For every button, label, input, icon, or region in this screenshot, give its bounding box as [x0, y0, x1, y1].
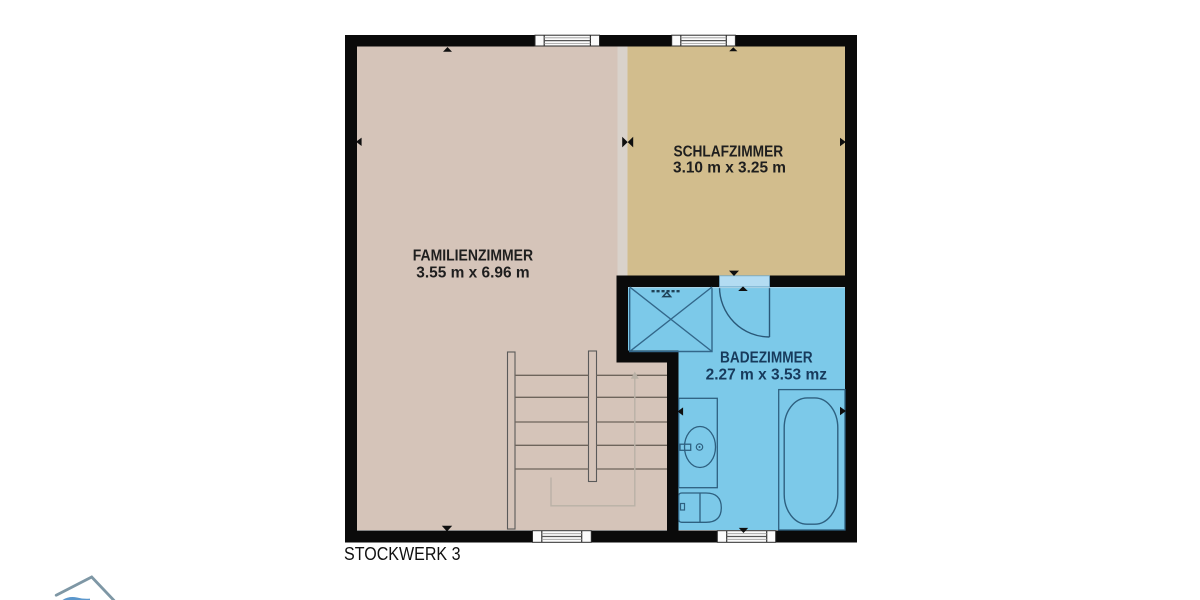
- svg-text:FAMILIENZIMMER: FAMILIENZIMMER: [413, 247, 534, 264]
- svg-text:2.27 m x 3.53 mz: 2.27 m x 3.53 mz: [706, 366, 827, 383]
- svg-text:STOCKWERK 3: STOCKWERK 3: [344, 543, 461, 564]
- svg-text:BADEZIMMER: BADEZIMMER: [720, 350, 813, 367]
- svg-text:SCHLAFZIMMER: SCHLAFZIMMER: [673, 144, 783, 161]
- svg-text:3.10 m x 3.25 m: 3.10 m x 3.25 m: [673, 159, 786, 176]
- svg-text:3.55 m x 6.96 m: 3.55 m x 6.96 m: [416, 264, 529, 281]
